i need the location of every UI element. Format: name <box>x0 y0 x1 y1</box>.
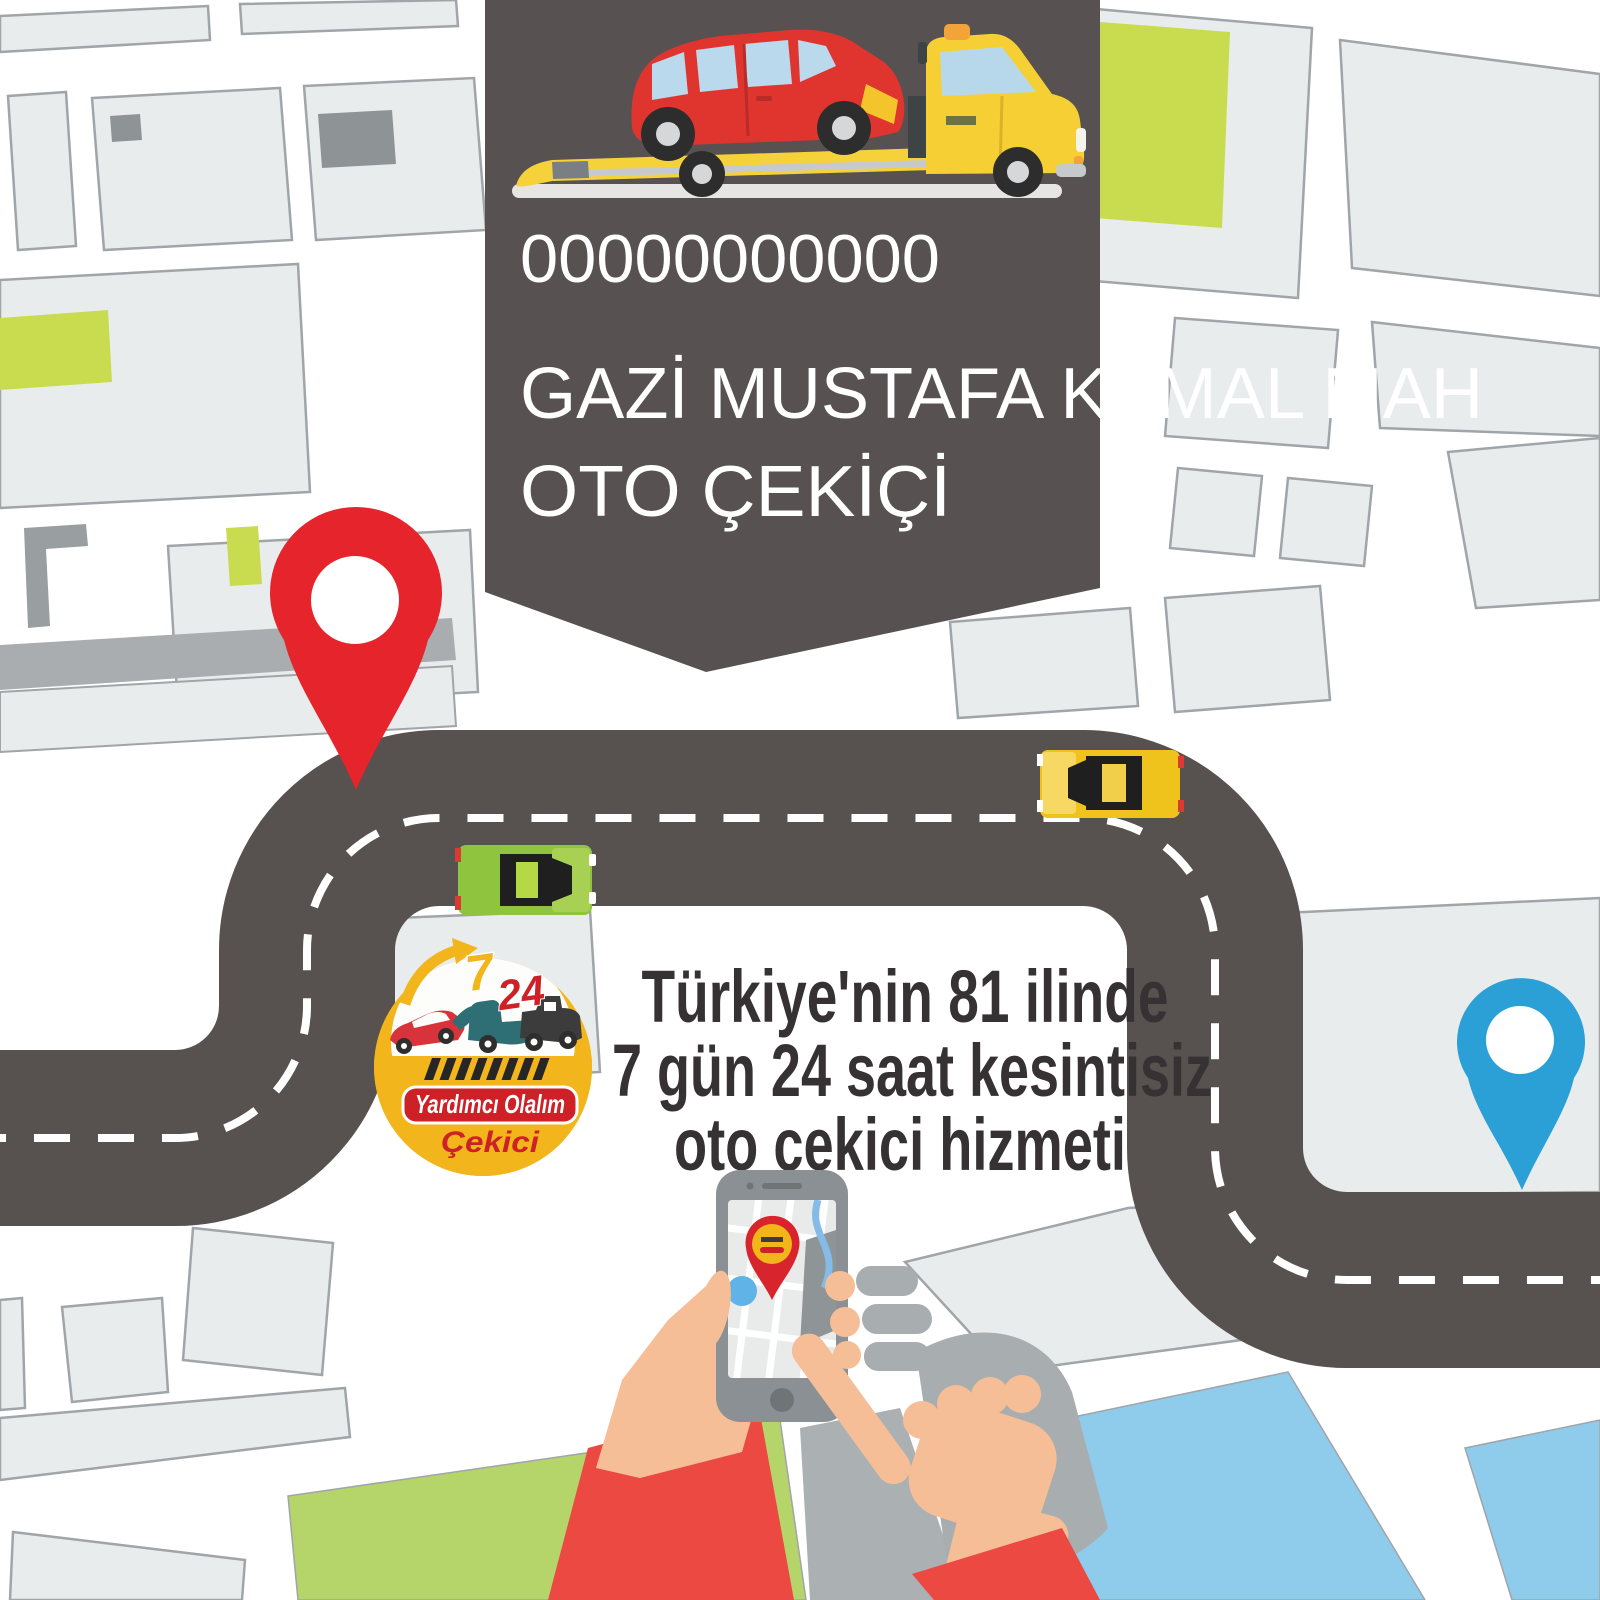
map-block <box>1448 438 1600 608</box>
map-block <box>1340 40 1600 296</box>
green-car-taillight <box>455 896 461 910</box>
map-block <box>1165 586 1330 712</box>
carried-red-car <box>632 30 905 161</box>
car-door-handle <box>756 96 772 101</box>
logo-ribbon-label: Yardımcı Olalım <box>415 1089 565 1119</box>
banner-neighborhood: GAZİ MUSTAFA KEMAL MAH <box>520 354 1483 434</box>
logo-wheel-hub <box>531 1039 538 1046</box>
lime-lot <box>1094 22 1230 228</box>
headline-line-1: Türkiye'nin 81 ilinde <box>642 955 1169 1038</box>
green-car-roof <box>516 862 538 898</box>
car-wheel-rim <box>832 116 856 140</box>
phone-home-button <box>770 1388 794 1412</box>
logo-wheel-hub <box>485 1041 492 1048</box>
truck-wheel-rim <box>692 164 712 184</box>
taxi-taillight <box>1178 800 1184 812</box>
phone-camera <box>747 1183 754 1190</box>
screen-blue-dot <box>727 1276 757 1306</box>
map-block <box>92 88 292 250</box>
logo-wheel-hub <box>401 1043 407 1049</box>
cab-mirror <box>918 42 927 64</box>
map-block <box>0 1298 25 1410</box>
logo-caption: Çekici <box>441 1126 540 1159</box>
left-finger <box>825 1271 855 1301</box>
promo-poster: 00000000000 GAZİ MUSTAFA KEMAL MAH OTO Ç… <box>0 0 1600 1600</box>
taxi-windshield <box>1068 760 1086 806</box>
map-block <box>1170 468 1262 556</box>
red-pin-hole <box>311 556 399 644</box>
car-window <box>696 45 738 92</box>
taxi-roof <box>1102 764 1126 802</box>
cab-badge <box>946 116 976 125</box>
taxi-top-icon <box>1037 750 1184 818</box>
green-car-top-icon <box>455 845 596 915</box>
map-block <box>950 608 1138 718</box>
cab-headboard <box>908 96 926 158</box>
truck-wheel-rim <box>1007 161 1029 183</box>
logo-day: 24 <box>494 966 548 1019</box>
left-finger <box>830 1307 860 1337</box>
beacon-light <box>944 24 970 40</box>
lime-lot <box>226 526 262 586</box>
car-wheel-rim <box>656 122 680 146</box>
map-block <box>1280 478 1372 566</box>
flatbed-box <box>552 161 589 179</box>
green-car-headlight <box>589 854 596 866</box>
cab-bumper <box>1056 164 1086 177</box>
taxi-headlight <box>1037 800 1043 812</box>
map-block <box>62 1298 168 1402</box>
lime-lot <box>0 310 112 390</box>
banner-phone-number: 00000000000 <box>520 221 940 297</box>
building <box>110 114 142 142</box>
building <box>318 110 396 168</box>
map-block <box>183 1228 333 1375</box>
green-car-taillight <box>455 848 461 862</box>
cab-headlight <box>1076 128 1086 152</box>
car-window <box>744 40 792 87</box>
green-car-headlight <box>589 892 596 904</box>
blue-pin-hole <box>1486 1006 1554 1074</box>
map-block <box>8 92 76 250</box>
phone-speaker <box>762 1183 802 1189</box>
poster-canvas: 00000000000 GAZİ MUSTAFA KEMAL MAH OTO Ç… <box>0 0 1600 1600</box>
logo-wheel-hub <box>443 1033 449 1039</box>
headline-text: Türkiye'nin 81 ilinde 7 gün 24 saat kesi… <box>612 955 1212 1186</box>
banner-service-name: OTO ÇEKİÇİ <box>520 452 951 532</box>
taxi-headlight <box>1037 754 1043 766</box>
taxi-taillight <box>1178 756 1184 768</box>
ground-bar <box>512 184 1062 198</box>
headline-line-2: 7 gün 24 saat kesintisiz <box>612 1029 1212 1112</box>
logo-wheel-hub <box>565 1037 572 1044</box>
